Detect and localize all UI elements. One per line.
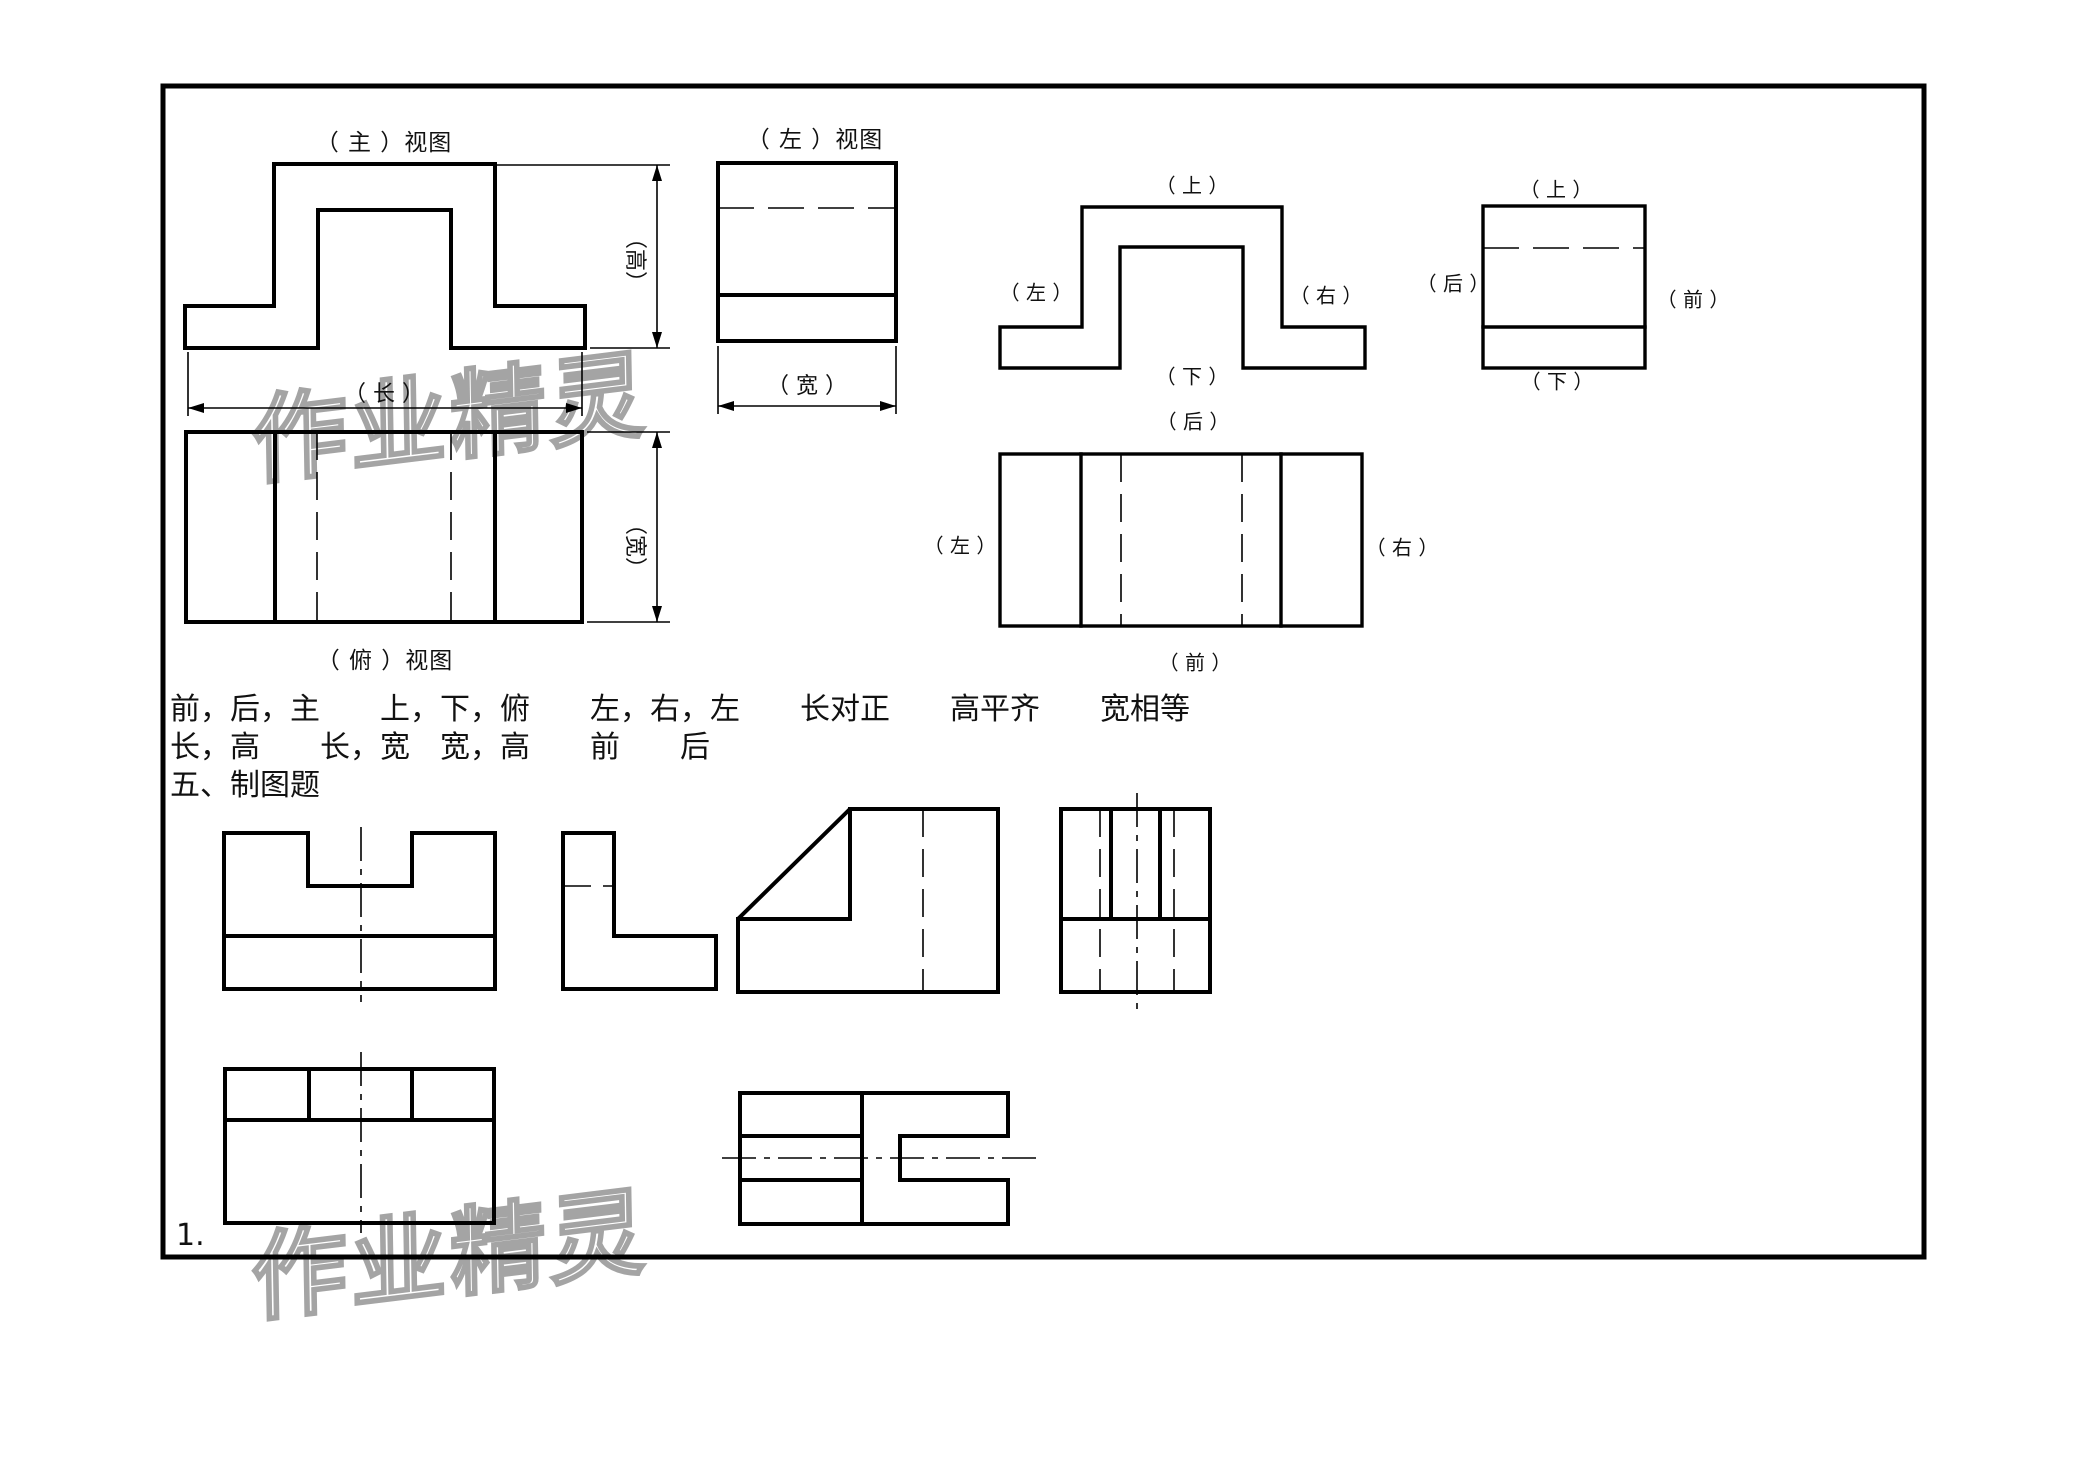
front-dir-top-label: （ 上 ） xyxy=(1156,170,1229,199)
front-dir-right-label: （ 右 ） xyxy=(1290,280,1363,309)
section-heading: 五、制图题 xyxy=(170,760,320,804)
front-view-title: （ 主 ）视图 xyxy=(316,123,453,157)
item-number: 1. xyxy=(176,1218,205,1253)
worksheet-page: 作业精灵 作业精灵 xyxy=(0,0,2087,1474)
topview-width-dim-label: （宽） xyxy=(621,513,653,579)
sketch-slot-top xyxy=(225,1052,494,1233)
sketch-slot-front xyxy=(1061,793,1210,1010)
sketch-u-block xyxy=(224,827,495,1002)
front-dir-left-label: （ 左 ） xyxy=(1000,277,1073,306)
top-view-drawing xyxy=(186,432,670,622)
top-view-title: （ 俯 ）视图 xyxy=(317,641,454,675)
sketch-l-block xyxy=(563,833,716,989)
direction-side-view-drawing xyxy=(1483,206,1645,368)
side-dir-bottom-label: （ 下 ） xyxy=(1521,366,1594,395)
top-dir-right-label: （ 右 ） xyxy=(1366,532,1439,561)
top-dir-bottom-label: （ 前 ） xyxy=(1159,647,1232,676)
top-dir-left-label: （ 左 ） xyxy=(924,530,997,559)
height-dim-label: （高） xyxy=(621,227,653,293)
side-dir-right-label: （ 前 ） xyxy=(1657,284,1730,313)
side-dir-top-label: （ 上 ） xyxy=(1520,174,1593,203)
direction-top-view-drawing xyxy=(1000,454,1362,626)
front-dir-bottom-label: （ 下 ） xyxy=(1156,361,1229,390)
top-dir-top-label: （ 后 ） xyxy=(1157,406,1230,435)
front-view-drawing xyxy=(185,164,670,416)
length-dim-label: （ 长 ） xyxy=(344,376,424,408)
sketch-chamfer-block xyxy=(738,809,998,992)
width-dim-label: （ 宽 ） xyxy=(767,368,847,400)
sketch-fork-side xyxy=(722,1093,1036,1224)
side-dir-left-label: （ 后 ） xyxy=(1417,268,1490,297)
left-view-title: （ 左 ）视图 xyxy=(747,120,884,154)
